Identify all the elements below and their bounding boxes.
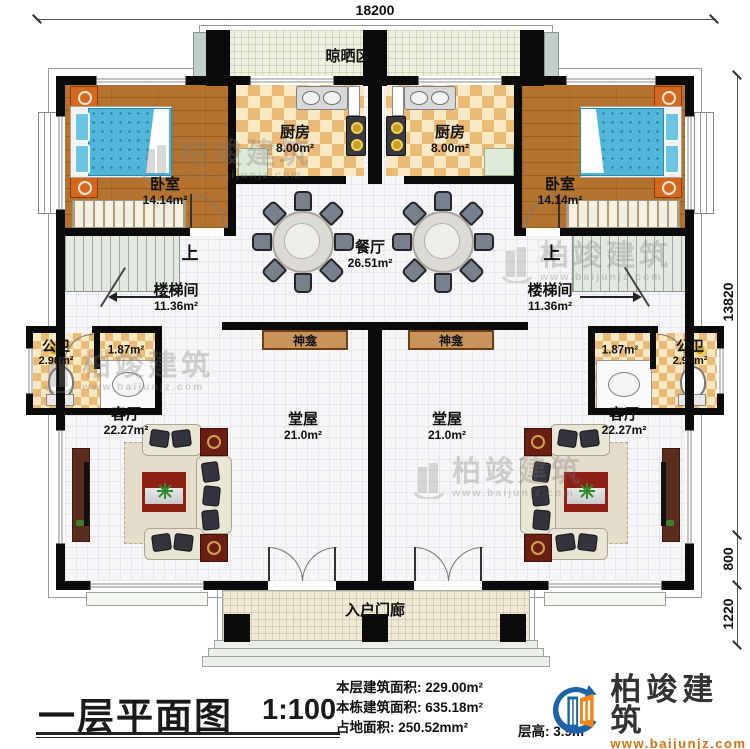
tv-icon xyxy=(84,462,89,526)
wall-segment xyxy=(368,322,382,590)
wardrobe-icon xyxy=(566,200,680,228)
dimension-top-label: 18200 xyxy=(356,2,395,18)
column xyxy=(206,30,230,86)
wall-segment xyxy=(588,326,658,333)
wall-segment xyxy=(588,326,595,415)
room-label-living-right: 客厅22.27m² xyxy=(602,407,647,437)
room-label-bedroom-left: 卧室14.14m² xyxy=(143,177,188,207)
door-opening xyxy=(526,228,560,236)
kitchen-door-panel xyxy=(392,86,404,116)
stat-label: 占地面积: xyxy=(336,720,395,735)
window xyxy=(418,76,502,85)
sofa-cushion xyxy=(532,509,551,530)
window xyxy=(566,76,656,85)
room-label-living-left: 客厅22.27m² xyxy=(104,407,149,437)
bay-window xyxy=(694,112,714,214)
nightstand-icon xyxy=(70,176,98,198)
door-opening xyxy=(190,228,224,236)
room-label-dining: 餐厅26.51m² xyxy=(348,240,393,270)
wall-segment xyxy=(92,326,162,333)
title-underline xyxy=(36,737,340,738)
room-label-kitchen-left: 厨房8.00m² xyxy=(276,125,314,155)
door-leaf xyxy=(334,547,336,581)
room-label-bedroom-right: 卧室14.14m² xyxy=(538,177,583,207)
kitchen-sink-icon xyxy=(404,86,456,110)
end-table-icon xyxy=(524,534,552,562)
title-block: 一层平面图 1:100 本层建筑面积: 229.00m² 本栋建筑面积: 635… xyxy=(0,668,750,749)
sofa-cushion xyxy=(202,485,221,507)
brand-logo-icon xyxy=(548,682,602,744)
stat-value: 635.18m² xyxy=(425,700,483,715)
plant-icon xyxy=(578,482,596,500)
column xyxy=(500,614,526,642)
window xyxy=(26,348,33,394)
sofa-cushion xyxy=(555,533,576,552)
sofa-cushion xyxy=(557,429,578,448)
window xyxy=(56,116,65,210)
room-label-bath-left: 公卫2.90m² xyxy=(39,339,74,367)
end-table-icon xyxy=(200,428,228,456)
dimension-right-porch-label: 1220 xyxy=(720,598,736,629)
dining-table-top xyxy=(424,223,460,259)
end-table-icon xyxy=(200,534,228,562)
stair-up-left: 上 xyxy=(182,244,199,264)
room-label-stair-right: 楼梯间11.36m² xyxy=(527,283,572,313)
sofa-cushion xyxy=(531,485,550,507)
wall-segment xyxy=(56,228,190,236)
sofa-cushion xyxy=(201,461,221,483)
door-leaf xyxy=(414,547,416,581)
shrine-left: 神龛 xyxy=(262,330,348,350)
stair-arrow xyxy=(580,296,634,298)
sofa-cushion xyxy=(171,429,192,448)
sofa-cushion xyxy=(532,461,552,483)
room-label-porch: 入户门廊 xyxy=(345,602,405,620)
door-leaf xyxy=(190,194,192,228)
washbasin-icon xyxy=(608,372,640,397)
window xyxy=(548,581,662,590)
dimension-line-right xyxy=(737,75,738,645)
window xyxy=(685,430,694,544)
wall-segment xyxy=(404,176,514,184)
room-label-hall-left: 堂屋21.0m² xyxy=(284,412,322,442)
wall-segment xyxy=(94,333,100,369)
stair-up-right: 上 xyxy=(544,244,561,264)
shrine-right-label: 神龛 xyxy=(439,332,463,349)
door-leaf xyxy=(480,547,482,581)
brand-logo: 柏竣建筑 www.baijunjz.com xyxy=(548,674,750,749)
basin-area-label-right: 1.87m² xyxy=(602,345,638,358)
fridge-icon xyxy=(238,148,268,176)
stairs-right xyxy=(572,232,688,292)
window xyxy=(685,116,694,210)
kitchen-door-panel xyxy=(348,86,360,116)
sofa-cushion xyxy=(577,533,598,552)
window-sill xyxy=(86,592,208,606)
stat-value: 229.00m² xyxy=(425,680,483,695)
wall-segment xyxy=(155,326,162,415)
stat-label: 本栋建筑面积: xyxy=(336,700,422,715)
room-label-kitchen-right: 厨房8.00m² xyxy=(431,125,469,155)
shrine-right: 神龛 xyxy=(408,330,494,350)
nightstand-icon xyxy=(654,176,682,198)
sofa-cushion xyxy=(149,429,170,448)
plan-scale: 1:100 xyxy=(262,694,336,727)
room-label-hall-right: 堂屋21.0m² xyxy=(428,412,466,442)
dimension-right-label: 13820 xyxy=(720,283,736,322)
window-sill xyxy=(544,592,666,606)
title-underline xyxy=(36,732,340,735)
wall-segment xyxy=(368,76,382,184)
room-label-stair-left: 楼梯间11.36m² xyxy=(153,283,198,313)
nightstand-icon xyxy=(70,86,98,108)
nightstand-icon xyxy=(654,86,682,108)
tv-icon xyxy=(661,462,666,526)
window xyxy=(96,76,186,85)
sofa-cushion xyxy=(579,429,600,448)
dimension-right-step-label: 800 xyxy=(720,547,736,570)
wall-segment xyxy=(560,228,694,236)
window xyxy=(250,76,334,85)
stat-label: 本层建筑面积: xyxy=(336,680,422,695)
room-label-bath-right: 公卫2.90m² xyxy=(673,339,708,367)
column xyxy=(224,614,250,642)
sofa-cushion xyxy=(201,509,220,530)
porch-step xyxy=(202,656,550,667)
plan-stats: 本层建筑面积: 229.00m² 本栋建筑面积: 635.18m² 占地面积: … xyxy=(336,678,483,738)
wall-segment xyxy=(236,176,346,184)
pillow-icon xyxy=(664,112,680,142)
sofa-cushion xyxy=(173,533,194,552)
shrine-left-label: 神龛 xyxy=(293,332,317,349)
decor-plant xyxy=(666,520,674,526)
stove-icon xyxy=(346,116,366,156)
dimension-line-top xyxy=(36,19,714,20)
window xyxy=(56,430,65,544)
end-table-icon xyxy=(524,428,552,456)
column xyxy=(520,30,544,86)
window xyxy=(90,581,204,590)
pillow-icon xyxy=(74,112,90,142)
wall-segment xyxy=(650,333,656,369)
room-label-drying: 晾晒区 xyxy=(325,48,370,66)
brand-url: www.baijunjz.com xyxy=(610,736,750,749)
door-opening xyxy=(268,581,336,590)
door-opening xyxy=(414,581,482,590)
decor-plant xyxy=(76,520,84,526)
wall-segment xyxy=(382,322,528,330)
window xyxy=(717,348,724,394)
floor-plan-canvas: 神龛 神龛 xyxy=(0,0,750,749)
washbasin-icon xyxy=(112,372,144,397)
wall-segment xyxy=(228,76,236,236)
brand-name: 柏竣建筑 xyxy=(610,674,750,736)
plant-icon xyxy=(156,482,174,500)
fridge-icon xyxy=(484,148,514,176)
kitchen-sink-icon xyxy=(296,86,348,110)
door-leaf xyxy=(268,547,270,581)
dining-table-top xyxy=(284,223,320,259)
pillow-icon xyxy=(664,144,680,174)
basin-area-label-left: 1.87m² xyxy=(108,345,144,358)
wall-segment xyxy=(222,322,368,330)
stove-icon xyxy=(386,116,406,156)
stat-value: 250.52mm² xyxy=(398,720,468,735)
pillow-icon xyxy=(74,144,90,174)
wall-segment xyxy=(514,76,522,236)
bay-window xyxy=(38,112,58,214)
sofa-cushion xyxy=(151,533,172,552)
